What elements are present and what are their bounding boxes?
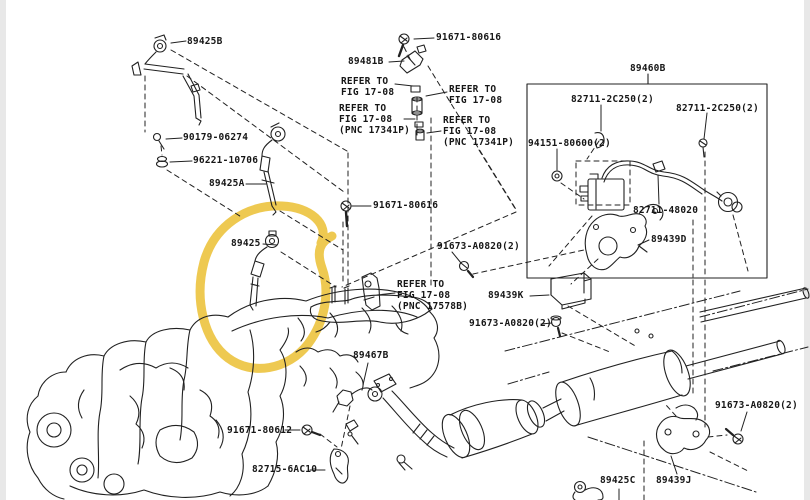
label-89467B[interactable]: 89467B [353,350,389,361]
label-refer-pnc-left: REFER TO FIG 17-08 (PNC 17341P) [339,103,410,136]
label-82711-2C250-b[interactable]: 82711-2C250(2) [676,103,759,114]
stay-82715-6AC10 [330,420,358,483]
label-91673-A0820-low[interactable]: 91673-A0820(2) [469,318,552,329]
label-89425B[interactable]: 89425B [187,36,223,47]
label-refer-pnc-right: REFER TO FIG 17-08 (PNC 17341P) [443,115,514,148]
label-82711-2C250-a[interactable]: 82711-2C250(2) [571,94,654,105]
label-90179-06274[interactable]: 90179-06274 [183,132,248,143]
wire-harness [602,161,722,201]
label-89425C[interactable]: 89425C [600,475,636,486]
label-91671-80612[interactable]: 91671-80612 [227,425,292,436]
label-refer-pnc-17578: REFER TO FIG 17-08 (PNC 17578B) [397,279,468,312]
bolt-91673-up [460,262,474,278]
sensor-89467B [333,387,382,412]
bolt-91673-bottom-right [726,429,743,444]
bracket-89439J [657,405,710,454]
label-89439K[interactable]: 89439K [488,290,524,301]
label-89425[interactable]: 89425 [231,238,261,249]
label-89439D[interactable]: 89439D [651,234,687,245]
bolt-91671-80616-top [399,34,409,56]
sensor-89425A [260,123,285,215]
label-refer-fig-left: REFER TO FIG 17-08 [341,76,394,98]
bolt-90179-06274 [154,134,165,150]
label-89481B[interactable]: 89481B [348,56,384,67]
label-89460B[interactable]: 89460B [630,63,666,74]
bolt-91671-80612 [302,425,320,435]
diagram-linework [0,0,810,500]
label-91673-A0820-br[interactable]: 91673-A0820(2) [715,400,798,411]
bolt-91673-low [551,316,561,336]
label-89425A[interactable]: 89425A [209,178,245,189]
sensor-89425C [573,482,603,500]
label-94151-80600[interactable]: 94151-80600(2) [528,138,611,149]
label-89439J[interactable]: 89439J [656,475,692,486]
highlight-ellipse [200,206,332,368]
grommet-96221-10706 [157,157,168,168]
parts-diagram-page: 89425B 90179-06274 96221-10706 89425A 91… [0,0,810,500]
label-96221-10706[interactable]: 96221-10706 [193,155,258,166]
label-91671-80616-top[interactable]: 91671-80616 [436,32,501,43]
label-91673-A0820-up[interactable]: 91673-A0820(2) [437,241,520,252]
connector-clip-82711-b [699,139,707,157]
label-refer-fig-right: REFER TO FIG 17-08 [449,84,502,106]
label-91671-80616-mid[interactable]: 91671-80616 [373,200,438,211]
grommet-94151 [552,171,562,181]
label-82715-6AC10[interactable]: 82715-6AC10 [252,464,317,475]
round-connector [717,192,742,212]
exhaust-system [374,287,810,470]
sensor-89425B [132,35,201,125]
label-82711-48020[interactable]: 82711-48020 [633,205,698,216]
